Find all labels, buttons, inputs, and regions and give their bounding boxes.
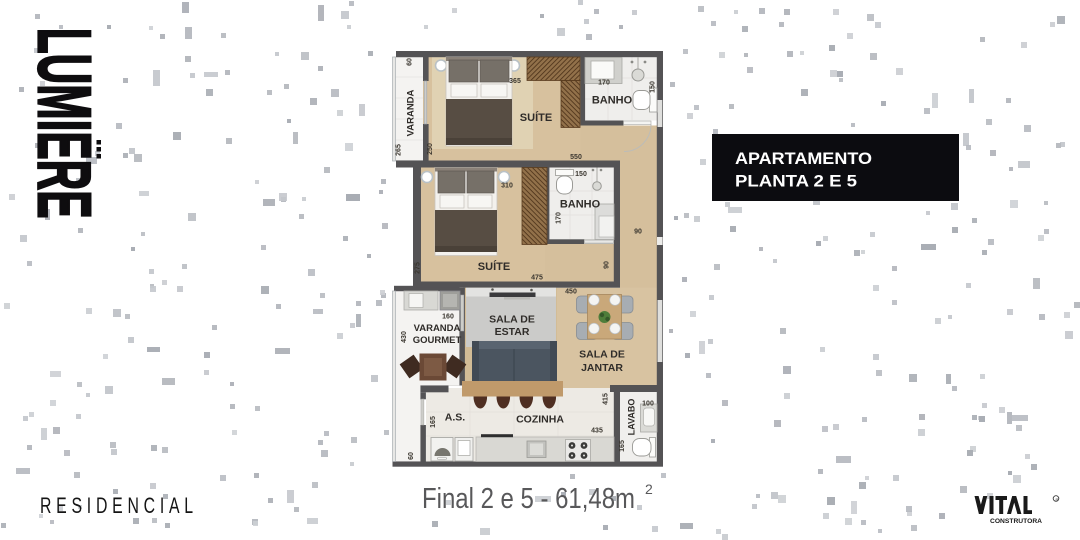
svg-text:450: 450 <box>565 289 577 296</box>
svg-text:90: 90 <box>604 261 611 269</box>
svg-text:415: 415 <box>603 393 610 405</box>
svg-text:435: 435 <box>591 428 603 435</box>
svg-text:90: 90 <box>634 229 642 236</box>
svg-text:BANHO: BANHO <box>560 199 601 211</box>
svg-text:160: 160 <box>442 314 454 321</box>
svg-text:SALA DE: SALA DE <box>489 314 535 326</box>
svg-text:SUÍTE: SUÍTE <box>478 260 510 273</box>
svg-text:RESIDENCIAL: RESIDENCIAL <box>40 495 198 519</box>
svg-text:ESTAR: ESTAR <box>495 326 530 338</box>
svg-text:VARANDA: VARANDA <box>414 323 461 334</box>
svg-text:2: 2 <box>645 481 653 497</box>
svg-text:165: 165 <box>430 416 437 428</box>
svg-text:150: 150 <box>575 171 587 178</box>
svg-text:275: 275 <box>415 262 422 274</box>
svg-text:170: 170 <box>556 212 563 224</box>
svg-text:A.S.: A.S. <box>445 412 466 424</box>
svg-text:PLANTA 2 E 5: PLANTA 2 E 5 <box>735 173 857 191</box>
svg-text:165: 165 <box>619 440 626 452</box>
svg-text:CONSTRUTORA: CONSTRUTORA <box>990 519 1043 525</box>
svg-text:250: 250 <box>427 143 434 155</box>
svg-text:310: 310 <box>501 183 513 190</box>
svg-text:365: 365 <box>509 78 521 85</box>
svg-text:60: 60 <box>407 58 414 66</box>
svg-text:LUMIERE: LUMIERE <box>22 28 106 219</box>
svg-text:100: 100 <box>642 401 654 408</box>
svg-text:BANHO: BANHO <box>592 95 633 107</box>
svg-text:265: 265 <box>396 144 403 156</box>
svg-text:170: 170 <box>598 80 610 87</box>
svg-text:COZINHA: COZINHA <box>516 414 564 426</box>
svg-text:R: R <box>1056 497 1059 502</box>
svg-text:GOURMET: GOURMET <box>413 335 462 346</box>
svg-text:550: 550 <box>570 154 582 161</box>
svg-text:VARANDA: VARANDA <box>406 89 417 136</box>
svg-text:Final 2 e 5 - 61,48m: Final 2 e 5 - 61,48m <box>422 483 635 515</box>
svg-text:475: 475 <box>531 275 543 282</box>
svg-text:SUÍTE: SUÍTE <box>520 111 552 124</box>
svg-text:430: 430 <box>401 331 408 343</box>
svg-text:LAVABO: LAVABO <box>627 399 637 436</box>
svg-text:APARTAMENTO: APARTAMENTO <box>735 150 872 168</box>
svg-text:60: 60 <box>408 452 415 460</box>
svg-text:150: 150 <box>650 81 657 93</box>
svg-text:SALA DE: SALA DE <box>579 349 625 361</box>
svg-text:JANTAR: JANTAR <box>581 362 623 374</box>
